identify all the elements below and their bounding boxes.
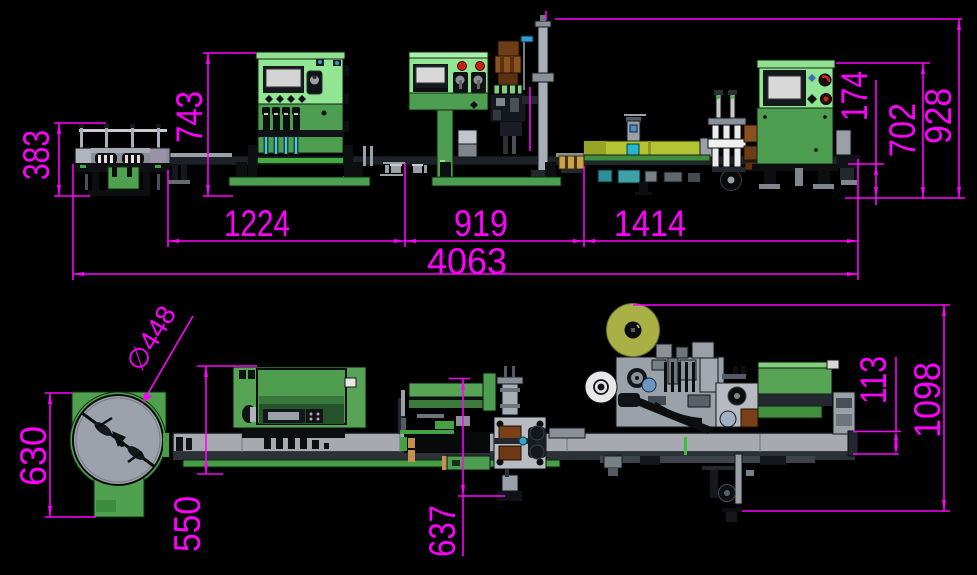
svg-text:919: 919 — [454, 203, 508, 244]
svg-text:4063: 4063 — [427, 241, 507, 282]
svg-text:1224: 1224 — [224, 203, 290, 244]
svg-text:113: 113 — [853, 356, 894, 404]
svg-text:637: 637 — [422, 505, 463, 557]
svg-text:928: 928 — [918, 88, 959, 144]
svg-text:174: 174 — [834, 71, 875, 121]
svg-text:383: 383 — [16, 130, 57, 180]
svg-text:743: 743 — [169, 91, 210, 143]
svg-text:702: 702 — [882, 103, 923, 157]
svg-text:630: 630 — [13, 426, 54, 486]
svg-text:1098: 1098 — [907, 362, 948, 438]
svg-text:1414: 1414 — [614, 203, 686, 244]
svg-text:550: 550 — [167, 496, 208, 552]
